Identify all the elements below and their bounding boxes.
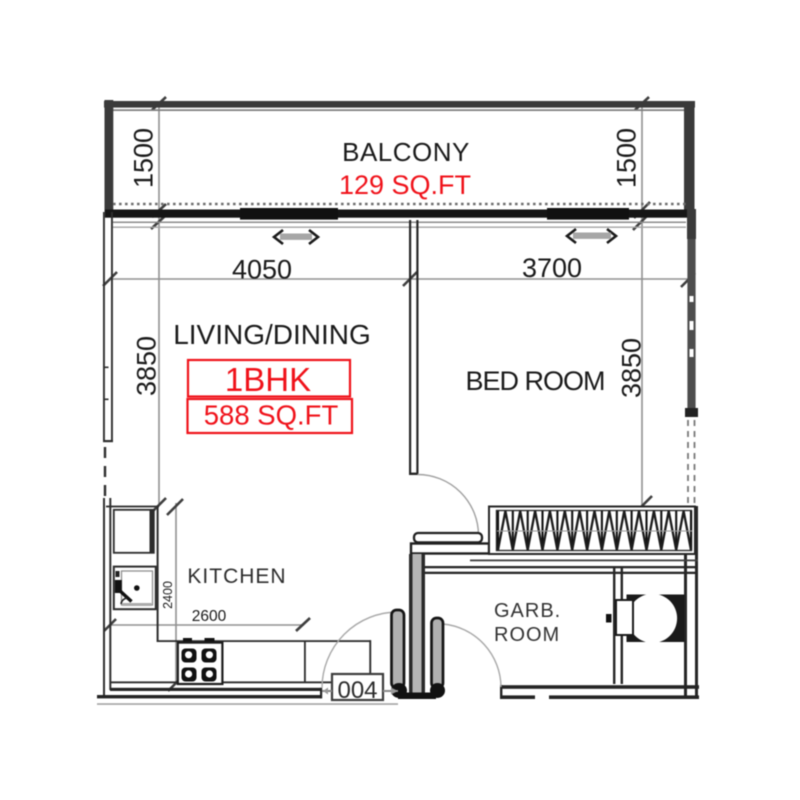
svg-text:3700: 3700 bbox=[522, 253, 582, 283]
svg-text:ROOM: ROOM bbox=[494, 624, 560, 646]
svg-text:588 SQ.FT: 588 SQ.FT bbox=[204, 400, 339, 431]
svg-text:1BHK: 1BHK bbox=[225, 361, 311, 398]
svg-text:BED ROOM: BED ROOM bbox=[465, 366, 604, 396]
svg-text:1500: 1500 bbox=[129, 128, 159, 188]
svg-text:GARB.: GARB. bbox=[494, 600, 561, 622]
svg-text:3850: 3850 bbox=[617, 338, 647, 398]
svg-text:1500: 1500 bbox=[612, 128, 642, 188]
svg-text:4050: 4050 bbox=[232, 255, 292, 285]
svg-text:129 SQ.FT: 129 SQ.FT bbox=[339, 170, 471, 200]
svg-text:KITCHEN: KITCHEN bbox=[187, 565, 286, 588]
svg-text:2400: 2400 bbox=[161, 581, 175, 609]
svg-text:2600: 2600 bbox=[192, 608, 227, 625]
svg-text:004: 004 bbox=[337, 677, 377, 704]
svg-text:3850: 3850 bbox=[132, 336, 162, 396]
svg-text:LIVING/DINING: LIVING/DINING bbox=[173, 319, 371, 350]
svg-text:BALCONY: BALCONY bbox=[342, 137, 470, 167]
